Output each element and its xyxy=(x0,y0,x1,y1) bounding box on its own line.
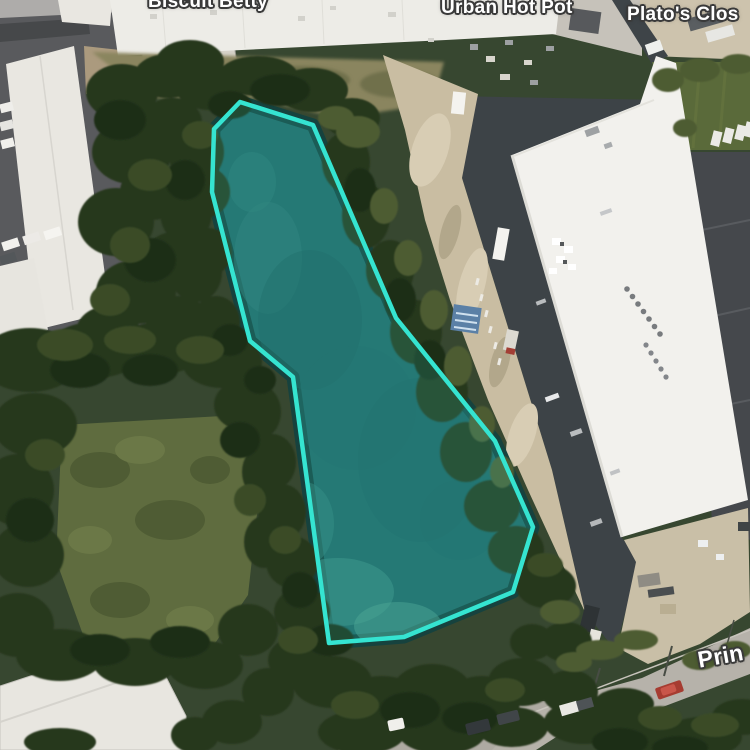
place-label-biscuit-betty[interactable]: Biscuit Betty xyxy=(148,0,268,11)
white-trailer xyxy=(451,91,466,114)
satellite-map[interactable]: Biscuit Betty Urban Hot Pot Plato's Clos… xyxy=(0,0,750,750)
aerial-imagery xyxy=(0,0,750,750)
place-label-urban-hot-pot[interactable]: Urban Hot Pot xyxy=(441,0,573,17)
place-label-platos-closet[interactable]: Plato's Clos xyxy=(627,5,739,24)
